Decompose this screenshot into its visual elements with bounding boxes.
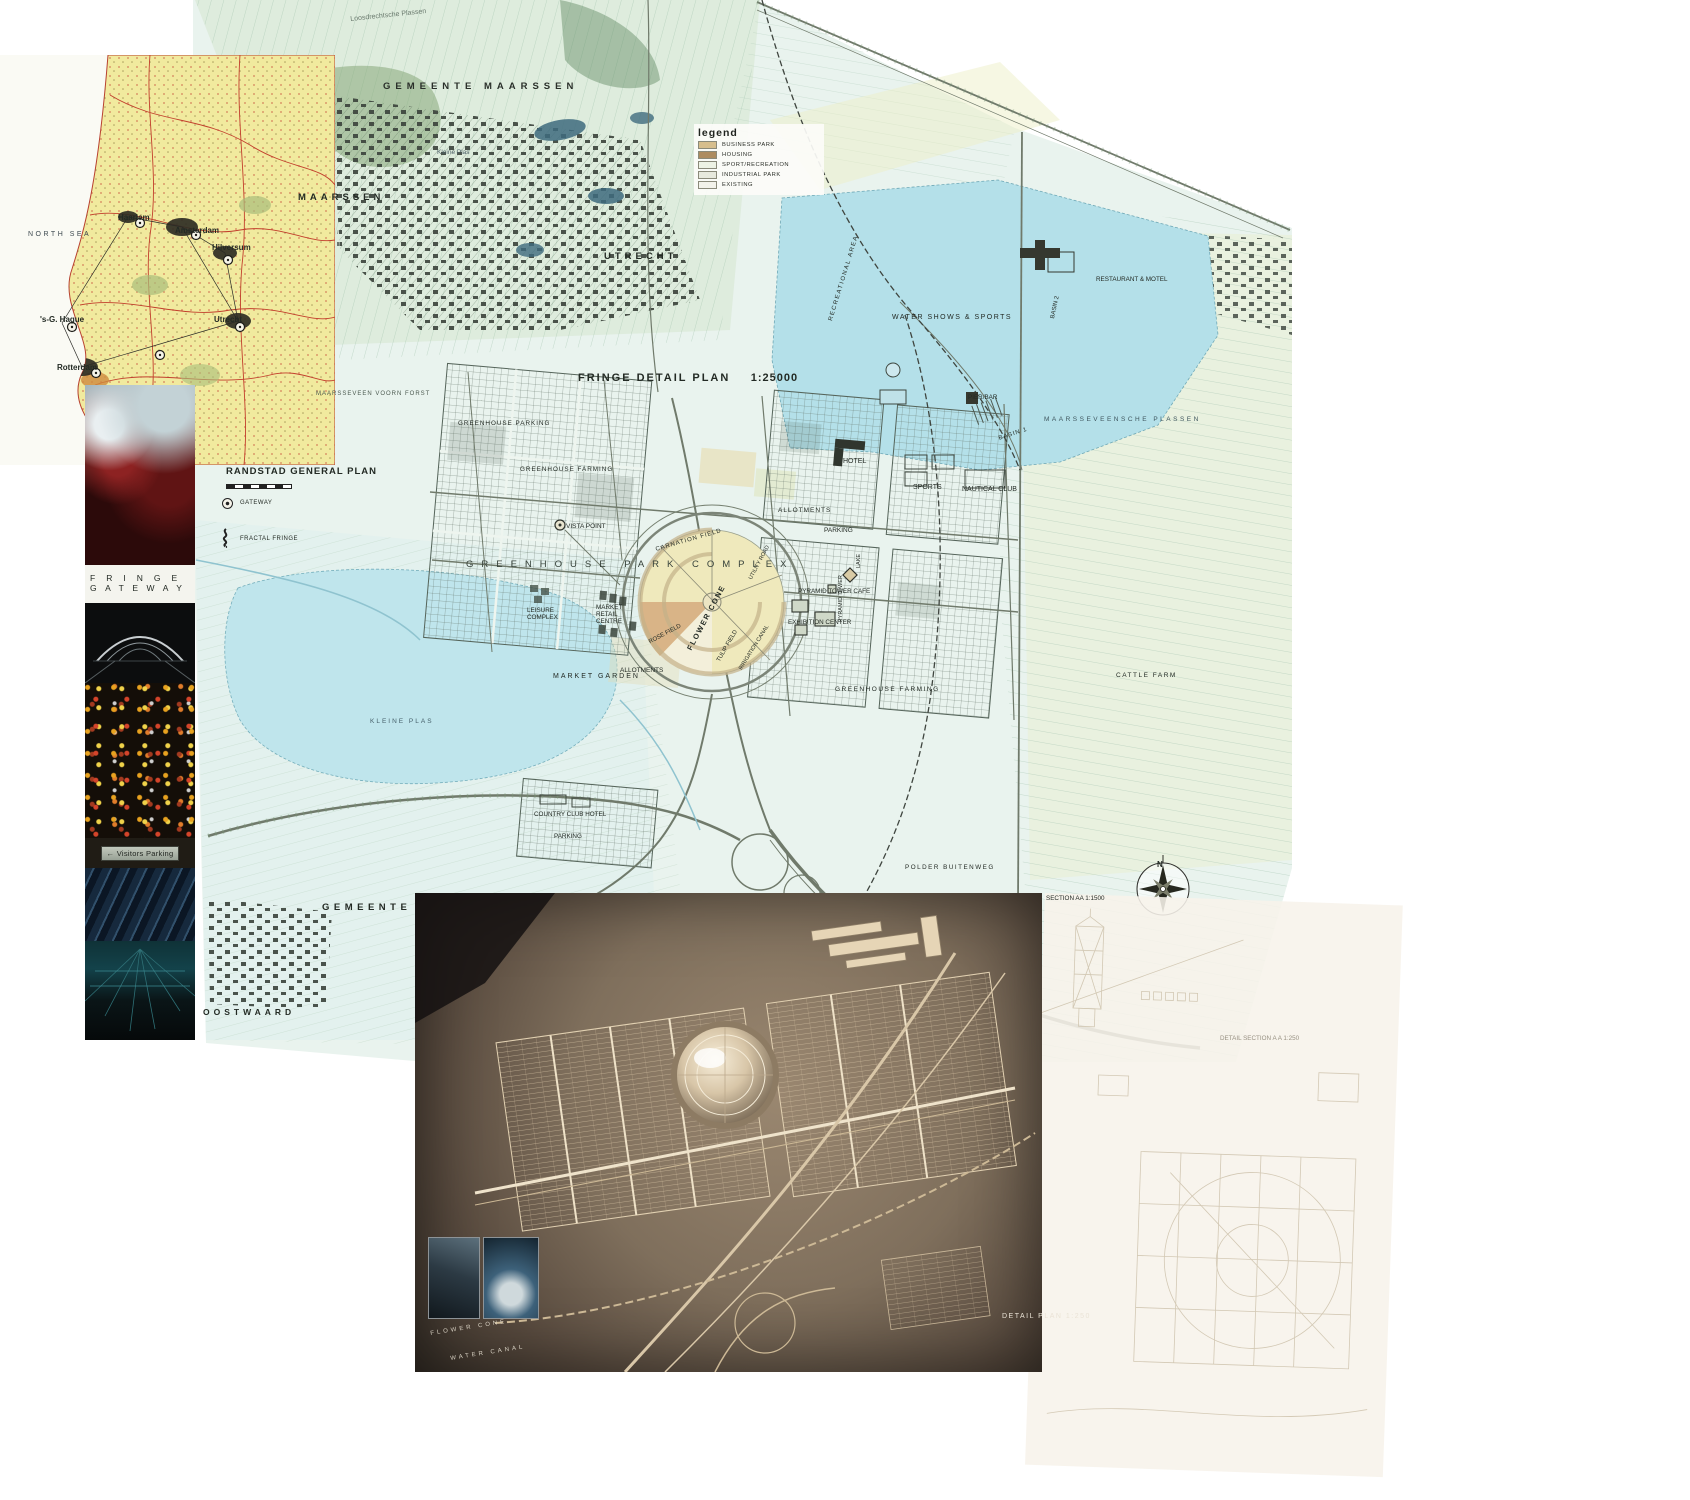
visitors-parking-photo: ← Visitors Parking [85, 838, 195, 868]
label-utrecht-inset: Utrecht [214, 315, 242, 324]
arrow-left-icon: ← [107, 849, 115, 858]
label-detail-section: DETAIL SECTION A A 1:250 [1220, 1035, 1299, 1042]
label-amsterdam: Amsterdam [175, 226, 219, 235]
label-vista-point: VISTA POINT [566, 523, 606, 530]
label-maarsseveensche-plassen: MAARSSEVEENSCHE PLASSEN [1044, 416, 1201, 423]
label-rotterdam: Rotterdam [57, 363, 97, 372]
legend-row: SPORT/RECREATION [698, 161, 820, 169]
label-restaurant-motel: RESTAURANT & MOTEL [1096, 276, 1168, 283]
legend-label-business-park: BUSINESS PARK [722, 142, 775, 148]
legend-swatch-existing [698, 181, 717, 189]
label-cattle-farm: CATTLE FARM [1116, 672, 1177, 679]
legend-swatch-housing [698, 151, 717, 159]
presentation-board: NORTH SEA Haarlem Amsterdam Hilversum Ut… [0, 0, 1690, 1500]
label-section-aa: SECTION AA 1:1500 [1046, 895, 1104, 902]
label-hotel: HOTEL [843, 458, 866, 466]
label-greenhouse-parking: GREENHOUSE PARKING [458, 420, 550, 427]
map-title: FRINGE DETAIL PLAN [578, 372, 730, 384]
legend-swatch-industrial-park [698, 171, 717, 179]
fractal-fringe-icon [219, 528, 233, 548]
map-scale: 1:25000 [751, 372, 798, 384]
legend-label-sport-recreation: SPORT/RECREATION [722, 162, 789, 168]
label-greenhouse-farming-b: GREENHOUSE FARMING [835, 686, 940, 693]
caption-gateway: GATEWAY [85, 584, 195, 594]
model-inset-photo-1 [428, 1237, 480, 1319]
gateway-icon [222, 498, 233, 509]
label-pier-bar: PIER/BAR [968, 394, 997, 401]
fractal-photo [85, 385, 195, 565]
legend-title: legend [698, 127, 820, 139]
inset-scalebar [226, 484, 292, 489]
label-north-sea: NORTH SEA [28, 231, 91, 239]
label-park-complex: GREENHOUSE PARK COMPLEX [466, 560, 794, 571]
label-utrecht: UTRECHT [604, 252, 677, 263]
glass-structure-photo [85, 868, 195, 941]
label-gemeente-maarssen: GEMEENTE MAARSSEN [383, 82, 578, 93]
legend-label-housing: HOUSING [722, 152, 753, 158]
label-hilversum: Hilversum [212, 243, 251, 252]
label-kleine-plas-top: Kleine Plas [437, 149, 470, 156]
section-drawing [1025, 893, 1403, 1477]
label-kleine-plas: KLEINE PLAS [370, 718, 434, 725]
label-fractal-fringe-key: FRACTAL FRINGE [240, 536, 298, 543]
inset-title: RANDSTAD GENERAL PLAN [226, 467, 377, 478]
label-polder-buitenweg: POLDER BUITENWEG [905, 864, 995, 871]
label-oostwaard: OOSTWAARD [203, 1008, 295, 1018]
label-parking-a: PARKING [824, 527, 853, 534]
visitors-parking-sign: ← Visitors Parking [101, 846, 180, 861]
label-exhibition-center: EXHIBITION CENTER [788, 619, 851, 626]
label-sports: SPORTS [913, 484, 942, 492]
model-photo [415, 893, 1042, 1372]
label-haarlem: Haarlem [118, 213, 150, 222]
label-den-haag: 's-G. Hague [40, 315, 84, 324]
map-title-row: FRINGE DETAIL PLAN 1:25000 [578, 368, 798, 386]
label-compass-n: N [1157, 860, 1163, 869]
label-leisure-complex: LEISURE COMPLEX [527, 607, 569, 621]
label-maarssen: MAARSSEN [298, 193, 384, 204]
greenhouse-interior-photo [85, 941, 195, 1040]
legend-label-existing: EXISTING [722, 182, 753, 188]
label-parking-b: PARKING [554, 833, 582, 840]
label-allotments-b: ALLOTMENTS [620, 667, 663, 674]
flower-field-photo [85, 683, 195, 838]
label-country-club-hotel: COUNTRY CLUB HOTEL [534, 811, 606, 818]
label-greenhouse-farming-a: GREENHOUSE FARMING [520, 466, 613, 473]
dome-photo [85, 603, 195, 683]
label-gateway-key: GATEWAY [240, 500, 272, 507]
label-gemeente-2: GEMEENTE [322, 903, 411, 914]
legend-row: HOUSING [698, 151, 820, 159]
label-maarsseveen-forest: MAARSSEVEEN VOORN FORST [316, 391, 430, 398]
map-legend: legend BUSINESS PARK HOUSING SPORT/RECRE… [694, 124, 824, 195]
label-market-retail-centre: MARKET RETAIL CENTRE [596, 604, 632, 626]
label-pyramid-tower: PYRAMID TOWER [838, 575, 844, 622]
legend-row: INDUSTRIAL PARK [698, 171, 820, 179]
label-nautical-club: NAUTICAL CLUB [962, 486, 1017, 494]
label-allotments-a: ALLOTMENTS [778, 507, 831, 514]
label-pyramid-tower-cafe: PYRAMID TOWER CAFE [798, 588, 870, 595]
legend-row: BUSINESS PARK [698, 141, 820, 149]
visitors-parking-text: Visitors Parking [117, 849, 174, 858]
model-inset-photo-2 [483, 1237, 539, 1319]
label-water-shows: WATER SHOWS & SPORTS [892, 314, 1012, 322]
legend-swatch-sport-recreation [698, 161, 717, 169]
legend-label-industrial-park: INDUSTRIAL PARK [722, 172, 781, 178]
legend-swatch-business-park [698, 141, 717, 149]
photo-strip-caption: FRINGE GATEWAY [85, 565, 195, 603]
label-detail-plan: DETAIL PLAN 1:250 [1002, 1313, 1091, 1321]
legend-row: EXISTING [698, 181, 820, 189]
label-lake: LAKE [856, 554, 862, 568]
